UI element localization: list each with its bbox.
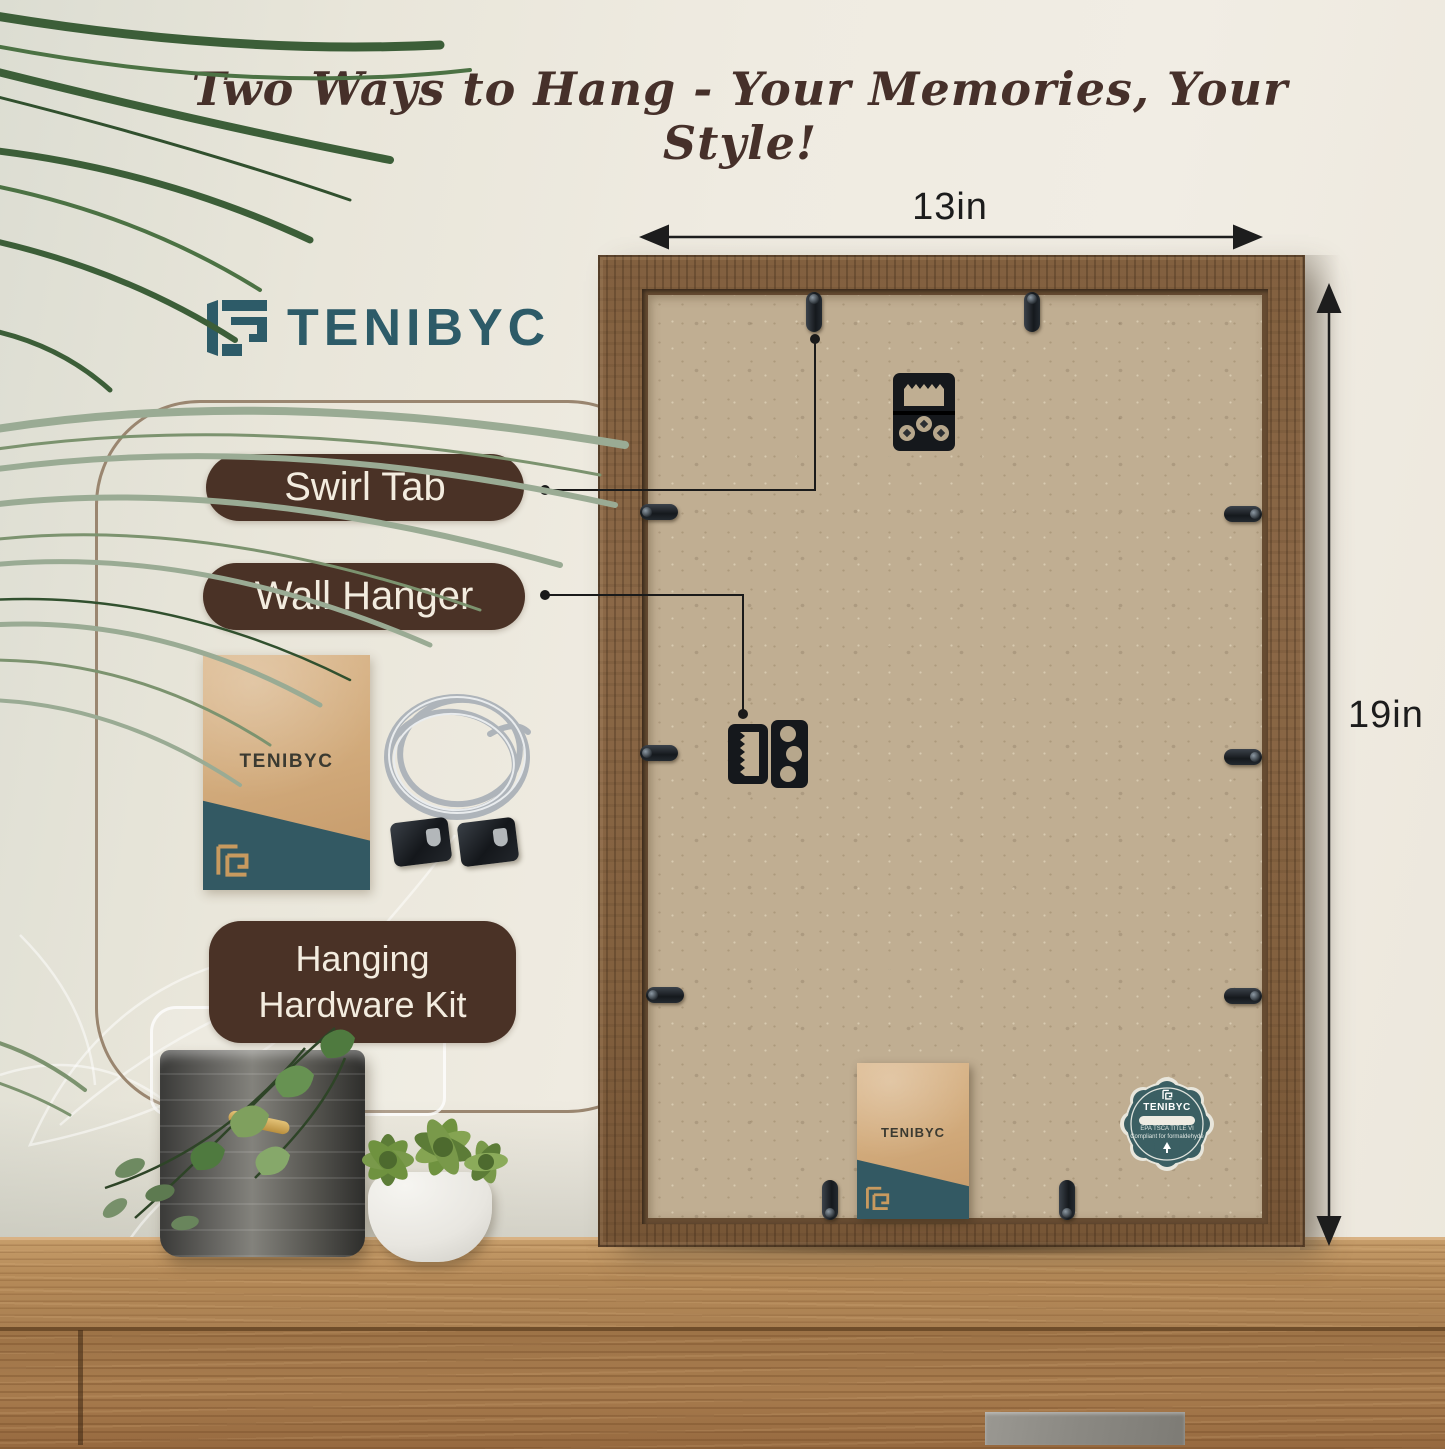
width-dimension-label: 13in <box>860 186 1040 229</box>
palm-plant <box>0 0 650 1120</box>
height-dimension-label: 19in <box>1348 694 1424 737</box>
